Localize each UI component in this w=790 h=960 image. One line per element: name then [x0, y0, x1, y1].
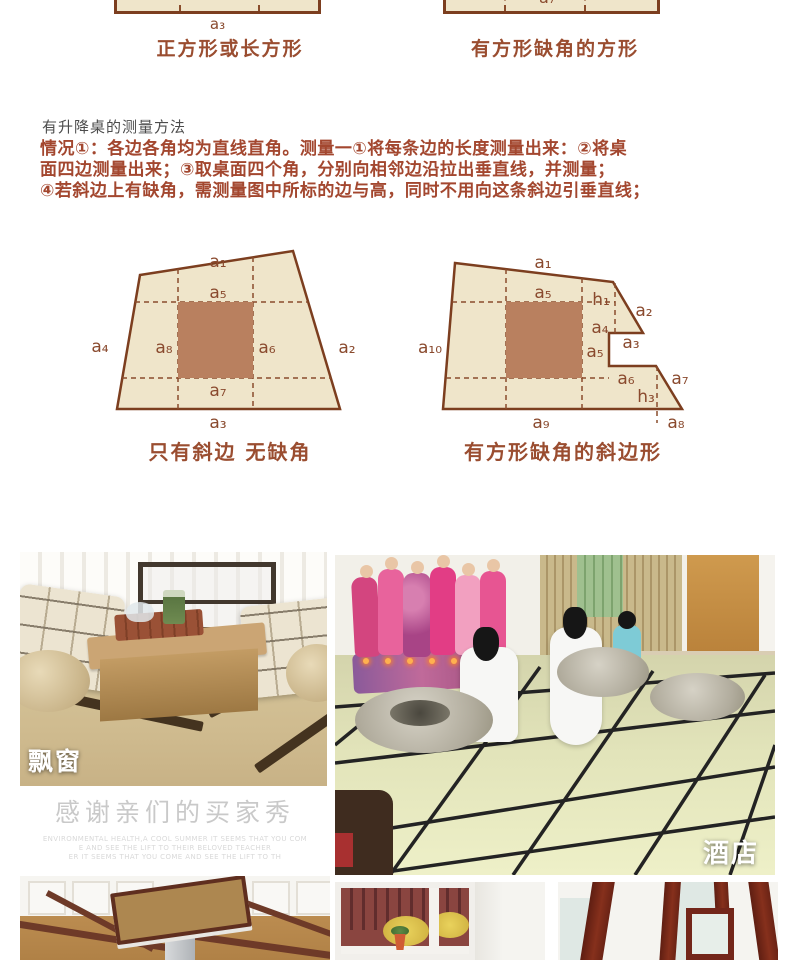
bean-pouf [557, 647, 649, 697]
tea-canister [163, 590, 185, 624]
person-qipao [430, 567, 456, 655]
diagram-edge-label: a₄ [591, 318, 608, 338]
lift-area-square [178, 302, 253, 378]
person-head [462, 563, 475, 576]
pouf-ink-pattern [390, 700, 450, 726]
buyer-show-subtext: ER IT SEEMS THAT YOU COME AND SEE THE LI… [10, 853, 340, 861]
tea-table-body [100, 648, 258, 721]
window-sill [341, 946, 469, 954]
person-head [437, 555, 450, 568]
diagram-caption: 有方形缺角的斜边形 [464, 440, 662, 464]
section-heading: 有升降桌的测量方法 [42, 116, 186, 137]
open-sash [686, 908, 734, 960]
diagram-edge-label: a₆ [617, 369, 634, 389]
measurement-instructions: 情况①：各边各角均为直线直角。测量一①将每条边的长度测量出来：②将桌 面四边测量… [40, 139, 760, 202]
diagram-edge-label: a₅ [586, 342, 603, 362]
dashed-line [584, 0, 586, 11]
person-head [487, 559, 500, 572]
diagram-edge-label: a₅ [209, 283, 226, 303]
diagram-edge-label: a₂ [338, 338, 355, 358]
diagram-edge-label: a₃ [209, 413, 226, 433]
diagram-edge-label: a₂ [635, 301, 652, 321]
diagram-edge-label: a₄ [91, 337, 108, 357]
diagram-edge-label: a₁₀ [418, 338, 442, 358]
window-frame [335, 882, 475, 960]
buyer-show-subtext: ENVIRONMENTAL HEALTH,A COOL SUMMER IT SE… [10, 835, 340, 843]
candle-flame [451, 658, 457, 664]
dashed-line [179, 0, 181, 11]
diagram-edge-label: a₇ [209, 381, 226, 401]
square-diagram-partial: a₇ [114, 0, 321, 14]
diagram-caption: 只有斜边 无缺角 [149, 440, 312, 464]
candle-flame [363, 658, 369, 664]
buyer-show-subtext: E AND SEE THE LIFT TO THEIR BELOVED TEAC… [10, 844, 340, 852]
white-wall [475, 882, 545, 960]
person-qipao [403, 573, 431, 657]
dashed-line [504, 0, 506, 11]
diagram-edge-label: a₃ [114, 15, 321, 33]
lift-area-square [506, 302, 582, 378]
product-description-page: a₇ a₃ 正方形或长方形 a₇ 有方形缺角的方形 有升降桌的测量方法 情况①：… [0, 0, 790, 960]
diagram-caption: 正方形或长方形 [115, 34, 345, 61]
measurement-diagrams: a₁ a₂ a₃ a₄ a₅ a₆ a₇ a₈ 只有斜边 无缺角 a₁ a₅ h… [0, 235, 790, 470]
wall-panel [296, 881, 330, 915]
diagram-edge-label: a₁ [534, 253, 551, 273]
candle-flame [407, 658, 413, 664]
person-hair [473, 627, 499, 661]
hotel-caption: 酒店 [703, 833, 759, 870]
instruction-line: 面四边测量出来；③取桌面四个角，分别向相邻边沿拉出垂直线，并测量； [40, 160, 760, 181]
bay-window-photo: 飘窗 [20, 552, 327, 786]
diagram-edge-label: h₁ [592, 290, 610, 310]
diagram-edge-label: a₈ [667, 413, 684, 433]
person-hair [618, 611, 636, 629]
window-mullion [429, 888, 439, 954]
notched-slanted-table-diagram: a₁ a₅ h₁ a₂ a₄ a₃ a₅ a₁₀ a₆ a₇ h₃ a₉ a₈ … [418, 253, 689, 464]
diagram-edge-label: a₇ [539, 0, 555, 7]
diagram-edge-label: a₆ [258, 338, 275, 358]
diagram-edge-label: a₁ [209, 252, 226, 272]
red-window-photo [558, 882, 778, 960]
hotel-photo: 酒店 [335, 555, 775, 875]
person-hair [563, 607, 587, 639]
diagram-edge-label: h₃ [637, 387, 655, 407]
diagram-edge-label: a₈ [155, 338, 172, 358]
person-qipao [351, 576, 381, 657]
candle-flame [429, 658, 435, 664]
diagram-edge-label: a₇ [671, 369, 688, 389]
person-head [360, 565, 373, 578]
diagram-edge-label: a₉ [532, 413, 549, 433]
glass-teapot [126, 602, 154, 622]
candle-flame [385, 658, 391, 664]
window-view-photo [335, 882, 545, 960]
diagram-edge-label: a₅ [534, 283, 551, 303]
dashed-line [258, 0, 260, 11]
diagram-edge-label: a₃ [622, 333, 639, 353]
instruction-line: ④若斜边上有缺角，需测量图中所标的边与高，同时不用向这条斜边引垂直线； [40, 181, 760, 202]
notched-square-diagram-partial: a₇ [443, 0, 660, 14]
person-head [385, 557, 398, 570]
bay-window-caption: 飘窗 [28, 742, 82, 778]
buyer-show-title: 感谢亲们的买家秀 [10, 793, 340, 829]
diagram-caption: 有方形缺角的方形 [455, 34, 655, 61]
instruction-line: 情况①：各边各角均为直线直角。测量一①将每条边的长度测量出来：②将桌 [40, 139, 760, 160]
bean-pouf [650, 673, 745, 721]
lift-table-photo [20, 876, 330, 960]
slanted-table-diagram: a₁ a₂ a₃ a₄ a₅ a₆ a₇ a₈ 只有斜边 无缺角 [91, 251, 355, 464]
person-head [411, 561, 424, 574]
person-qipao [378, 569, 404, 655]
